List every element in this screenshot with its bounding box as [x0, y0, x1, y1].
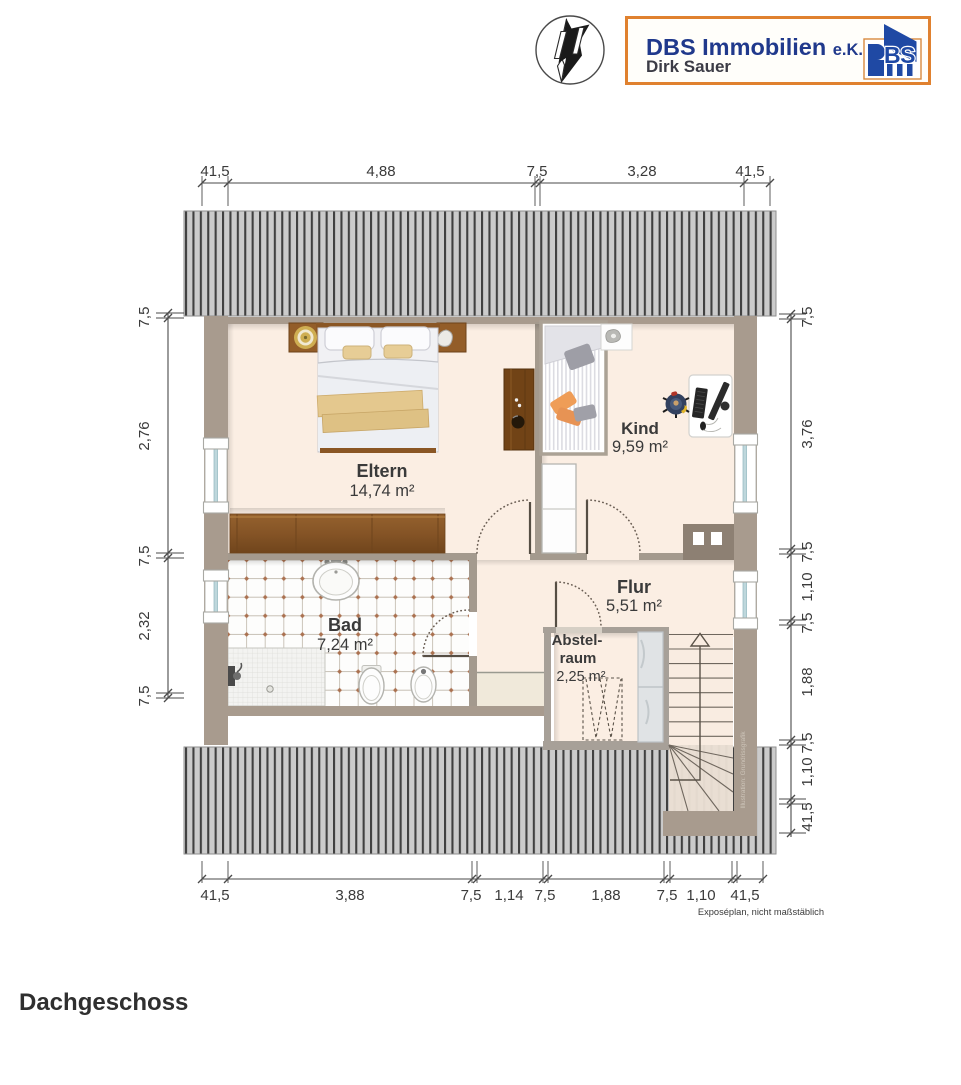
svg-text:7,5: 7,5	[799, 613, 816, 634]
svg-text:9,59 m²: 9,59 m²	[612, 438, 668, 456]
svg-text:Illustration: Grundrissgrafik: Illustration: Grundrissgrafik	[740, 731, 747, 809]
svg-text:7,24 m²: 7,24 m²	[317, 636, 373, 654]
svg-text:2,25 m²: 2,25 m²	[556, 669, 605, 685]
svg-text:7,5: 7,5	[136, 307, 153, 328]
svg-text:4,88: 4,88	[366, 163, 395, 180]
svg-text:2,76: 2,76	[136, 421, 153, 450]
svg-text:1,88: 1,88	[591, 887, 620, 904]
svg-text:2,32: 2,32	[136, 611, 153, 640]
svg-text:7,5: 7,5	[799, 542, 816, 563]
svg-text:7,5: 7,5	[136, 686, 153, 707]
svg-text:Flur: Flur	[617, 577, 651, 597]
svg-text:41,5: 41,5	[200, 887, 229, 904]
svg-text:7,5: 7,5	[527, 163, 548, 180]
svg-text:7,5: 7,5	[799, 733, 816, 754]
svg-text:1,88: 1,88	[799, 667, 816, 696]
svg-text:41,5: 41,5	[799, 802, 816, 831]
svg-text:Kind: Kind	[621, 419, 659, 438]
svg-text:3,76: 3,76	[799, 419, 816, 448]
svg-text:1,10: 1,10	[799, 572, 816, 601]
svg-text:1,14: 1,14	[494, 887, 523, 904]
svg-text:7,5: 7,5	[535, 887, 556, 904]
svg-text:Exposéplan, nicht maßstäblich: Exposéplan, nicht maßstäblich	[698, 907, 824, 917]
svg-text:41,5: 41,5	[200, 163, 229, 180]
svg-text:Abstel-: Abstel-	[552, 632, 603, 649]
svg-text:7,5: 7,5	[136, 546, 153, 567]
svg-text:Eltern: Eltern	[356, 461, 407, 481]
svg-text:Dachgeschoss: Dachgeschoss	[19, 989, 188, 1016]
svg-text:41,5: 41,5	[735, 163, 764, 180]
svg-text:1,10: 1,10	[686, 887, 715, 904]
svg-text:14,74 m²: 14,74 m²	[349, 482, 415, 500]
svg-text:3,28: 3,28	[627, 163, 656, 180]
svg-text:Dirk Sauer: Dirk Sauer	[646, 57, 731, 76]
svg-text:Bad: Bad	[328, 615, 362, 635]
svg-text:3,88: 3,88	[335, 887, 364, 904]
svg-text:7,5: 7,5	[799, 307, 816, 328]
svg-text:7,5: 7,5	[461, 887, 482, 904]
svg-text:41,5: 41,5	[730, 887, 759, 904]
svg-text:7,5: 7,5	[657, 887, 678, 904]
svg-text:raum: raum	[560, 650, 597, 667]
svg-text:1,10: 1,10	[799, 757, 816, 786]
svg-text:5,51 m²: 5,51 m²	[606, 597, 662, 615]
